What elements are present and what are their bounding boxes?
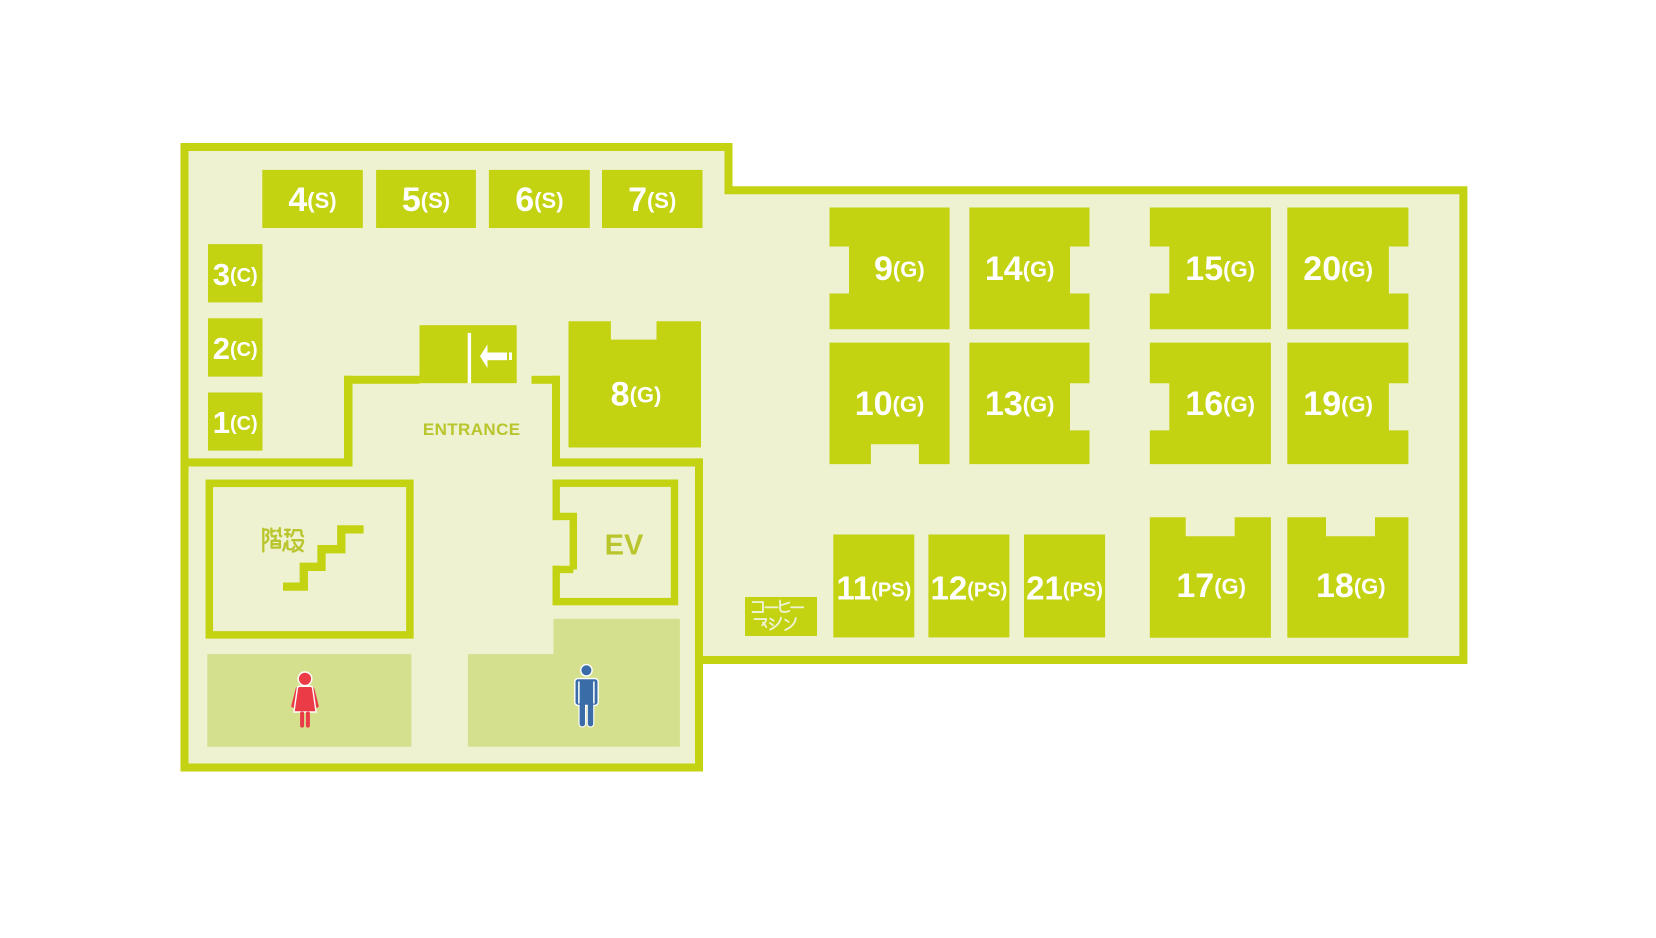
svg-text:EV: EV [605, 529, 644, 561]
svg-text:ENTRANCE: ENTRANCE [423, 420, 521, 439]
